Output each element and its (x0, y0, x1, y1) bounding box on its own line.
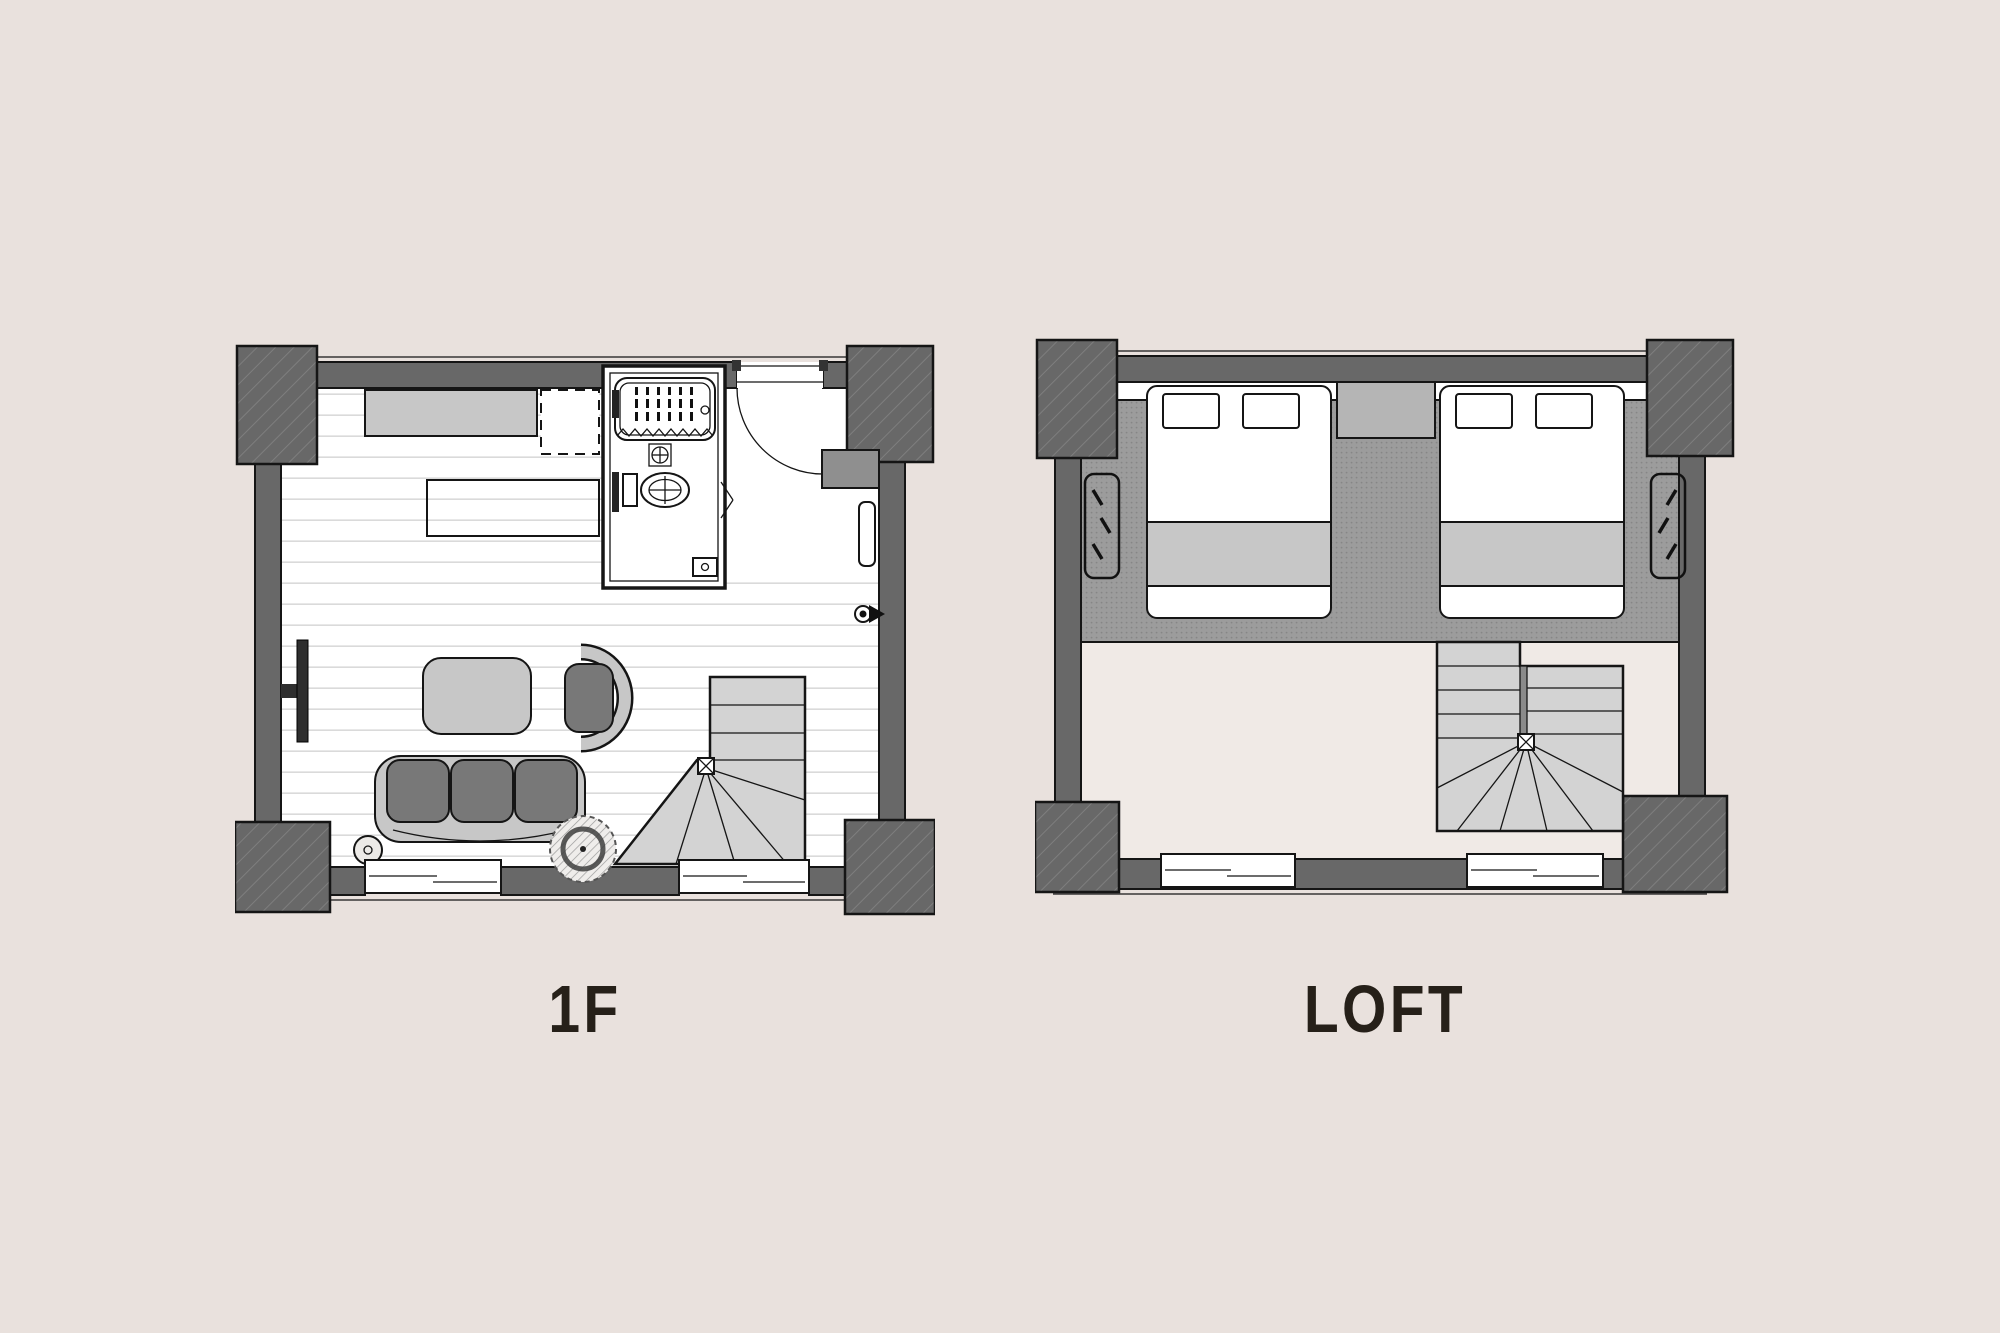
plan-label-1f: 1F (288, 976, 883, 1043)
door-jamb-left (732, 360, 741, 371)
refrigerator-space (541, 390, 599, 454)
bathtub-grate (631, 387, 699, 425)
pillar-top-right (847, 346, 933, 462)
unit-bathroom (603, 366, 733, 588)
plumbing-unit (612, 390, 619, 418)
sofa-cushion-1 (387, 760, 449, 822)
entrance-step (822, 450, 879, 488)
potted-plant (550, 816, 616, 882)
bed-left-pillow-1 (1163, 394, 1219, 428)
toilet (623, 473, 689, 507)
wall-top (1055, 356, 1705, 382)
floorplan-1f-drawing (235, 332, 935, 917)
washbasin (693, 558, 717, 576)
tv-mount (281, 684, 297, 698)
door-handle-knob (860, 611, 867, 618)
bed-right-pillow-2 (1536, 394, 1592, 428)
bed-right-pillow-1 (1456, 394, 1512, 428)
bed-right-blanket (1440, 522, 1624, 586)
tv-screen (297, 640, 308, 742)
plumbing-unit2 (612, 472, 619, 512)
pillar-bottom-right (1623, 796, 1727, 892)
winder-staircase-loft (1437, 642, 1623, 831)
coffee-table (423, 658, 531, 734)
three-seat-sofa (375, 756, 585, 842)
floorplan-1f (235, 332, 935, 917)
sofa-cushion-3 (515, 760, 577, 822)
pillar-bottom-left (1035, 802, 1119, 892)
stair-center-stringer (1520, 666, 1527, 742)
sofa-cushion-2 (451, 760, 513, 822)
pillar-top-right (1647, 340, 1733, 456)
floorplan-loft-drawing (1035, 326, 1735, 911)
kitchen-counter (365, 390, 537, 436)
floorplan-canvas: 1F (0, 0, 2000, 1333)
bed-left-blanket (1147, 522, 1331, 586)
pillar-bottom-left (235, 822, 330, 912)
plant-center (580, 846, 586, 852)
shoe-cabinet (859, 502, 875, 566)
pillar-top-left (237, 346, 317, 464)
toilet-tank (623, 474, 637, 506)
bed-left (1147, 386, 1331, 618)
floorplan-loft (1035, 326, 1735, 911)
door-jamb-right (819, 360, 828, 371)
bed-left-pillow-2 (1243, 394, 1299, 428)
nightstand (1337, 382, 1435, 438)
pillar-top-left (1037, 340, 1117, 458)
armchair-seat (565, 664, 613, 732)
wall-bottom (1055, 859, 1705, 889)
pillar-bottom-right (845, 820, 935, 914)
bed-right (1440, 386, 1624, 618)
plan-label-loft: LOFT (1088, 976, 1683, 1043)
